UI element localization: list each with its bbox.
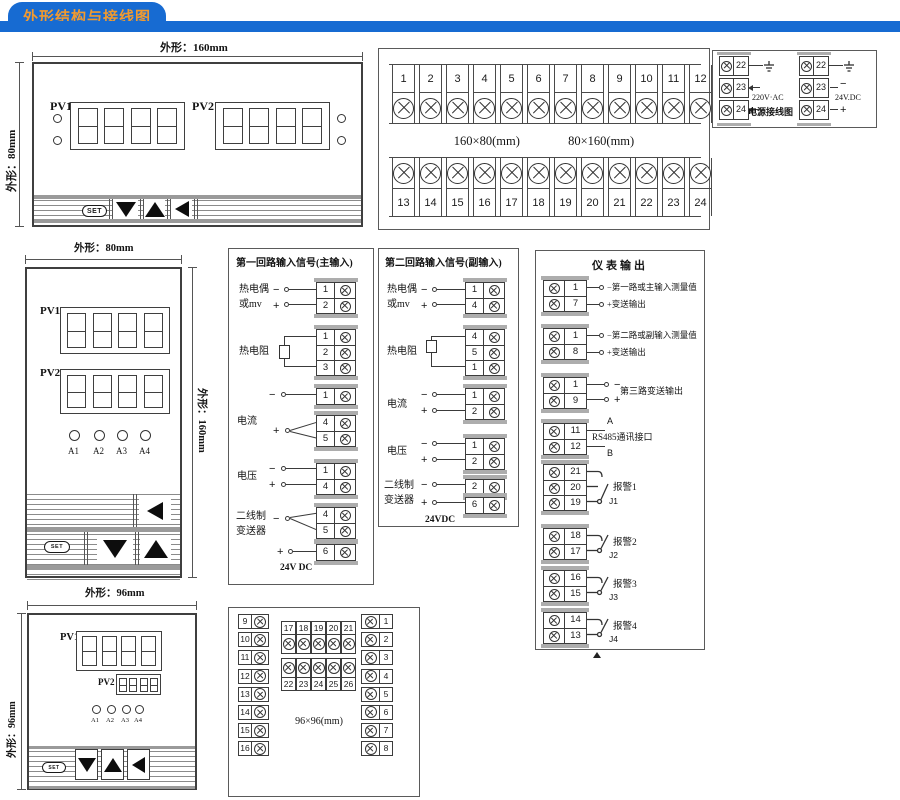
screw-icon [343,662,355,674]
terminal-cell: 7 [554,65,577,123]
terminal-cell: 22 [281,659,296,690]
terminal-number: 17 [501,188,522,216]
screw-icon [721,83,732,94]
terminal-number: 12 [565,440,586,454]
terminal-number: 7 [379,724,392,737]
wire [293,551,316,552]
terminal-number: 22 [636,188,657,216]
alarm-label: A1 [68,446,79,456]
terminal-number: 19 [312,622,325,635]
alarm-label: A2 [106,717,114,724]
wire-end [599,302,604,307]
alarm-label: A2 [93,446,104,456]
screw-icon [254,688,266,700]
voltage-label: 电压 [237,471,257,483]
terminal-cell: 8 [581,65,604,123]
terminal-number: 10 [636,65,657,93]
terminal-row-top: 1 2 3 4 5 6 7 8 [389,64,701,124]
terminal-row: 14 [238,705,269,720]
screw-icon [447,98,468,119]
screw-icon [328,662,340,674]
screw-icon [340,482,351,493]
terminal-number: 13 [239,688,252,701]
alarm-label: 报警3 [613,580,637,591]
terminal-number: 1 [466,283,484,298]
screw-icon [393,98,414,119]
plus-sign: + [840,105,846,115]
wire [830,87,838,88]
pv1-display [76,631,162,671]
terminal-number: 1 [466,439,484,454]
relay-j-label: J1 [609,497,618,507]
plus-sign: + [273,301,279,311]
minus-sign: − [269,464,275,474]
alarm-label: A4 [139,446,150,456]
screw-icon [474,98,495,119]
terminal-cell: 4 [473,65,496,123]
wire-end [604,397,609,402]
terminal-number: 1 [317,464,335,479]
screw-icon [298,638,310,650]
left-button [127,749,150,780]
wire [437,484,465,485]
dim-height-line [19,62,20,227]
screw-icon [549,331,560,342]
screw-icon [663,98,684,119]
screw-icon [549,396,560,407]
terminal-number: 10 [239,633,252,646]
relay-j-label: J3 [609,593,618,603]
terminal-number: 16 [239,742,252,755]
terminal-number: 22 [814,57,828,75]
terminal-row: 15 [544,586,586,601]
terminal-row: 9 [238,614,269,629]
wire-end [599,350,604,355]
terminal-number: 8 [582,65,603,93]
wire [431,366,465,367]
terminal-row: 1 [544,329,586,344]
pv2-label: PV2 [40,367,60,380]
indicator-lamp [53,136,62,145]
screw-icon [340,348,351,359]
wire-end [599,333,604,338]
wiring-diagram-page: 外形结构与接线图 外形：160mm 外形：80mm PV1 PV2 SET [0,0,900,800]
panel-face: PV1 PV2 A1 A2 A3 A4 SET [27,613,197,790]
terminal-number: 4 [317,480,335,494]
terminal-number: 24 [690,188,711,216]
screw-icon [365,743,377,755]
terminal-row: 7 [361,723,393,738]
button-strip: SET [29,746,195,789]
terminal-number: 2 [317,346,335,360]
panel-face: PV1 PV2 SET [32,62,363,227]
alarm-lamp [94,430,105,441]
terminal-row-bottom: 13 14 15 16 17 18 19 20 [389,157,701,217]
wire [286,468,316,469]
terminal-cell: 20 [581,158,604,216]
marker-icon [593,652,601,658]
screw-icon [489,332,500,343]
terminal-number: 24 [734,101,748,119]
minus-sign: − [269,390,275,400]
screw-icon [636,98,657,119]
panel-face: PV1 PV2 A1 A2 A3 A4 SET [25,267,182,578]
terminal-strip-box: 1 2 3 4 5 6 7 8 [378,48,710,230]
wire [587,287,599,288]
terminal-number: 3 [379,651,392,664]
terminal-block: 451 [465,329,505,376]
terminal-number: 13 [565,629,586,643]
terminal-row: 4 [361,669,393,684]
terminal-cell: 17 [500,158,523,216]
terminal-number: 2 [466,405,484,419]
down-arrow-icon [103,540,127,558]
terminal-cell: 26 [341,659,356,690]
screw-icon [254,670,266,682]
terminal-block: 14 [316,463,356,495]
wire [290,422,317,431]
down-arrow-icon [78,758,96,772]
terminal-block: 1413 [543,612,587,644]
terminal-number: 1 [466,389,484,404]
plus-sign: + [277,547,283,557]
down-button [97,536,133,561]
pv2-label: PV2 [98,677,115,687]
terminal-row: 6 [361,705,393,720]
terminal-number: 24 [312,677,325,690]
screw-icon [489,457,500,468]
terminal-number: 4 [474,65,495,93]
relay-j-label: J4 [609,635,618,645]
screw-icon [254,743,266,755]
terminal-row: 11 [544,424,586,439]
terminal-number: 11 [663,65,684,93]
terminal-cell: 21 [608,158,631,216]
plus-sign: + [273,426,279,436]
size-label-80x160: 80×160(mm) [568,134,634,148]
wire [289,304,316,305]
dim-height-label: 外形：96mm [7,701,19,758]
terminal-number: 18 [565,529,586,544]
terminal-number: 1 [317,330,335,345]
wire-end [599,285,604,290]
screw-icon [365,616,377,628]
terminal-row: 16 [544,571,586,586]
terminal-row: 1 [317,283,355,298]
dim-width-label: 外形：96mm [85,588,145,600]
terminal-row: 5 [361,687,393,702]
screw-icon [489,348,500,359]
terminal-number: 2 [379,633,392,646]
screw-icon [549,615,560,626]
output-line: +变送输出 [607,300,646,310]
terminal-row: 23 [799,78,829,98]
screw-icon [254,634,266,646]
terminal-row: 10 [238,632,269,647]
terminal-number: 20 [582,188,603,216]
terminal-row: 1 [317,389,355,404]
up-button [144,200,165,218]
screw-icon [801,105,812,116]
terminal-row: 4 [466,330,504,345]
terminal-number: 4 [317,416,335,431]
screw-icon [549,483,560,494]
down-button [75,749,98,780]
terminal-block: 1 [316,388,356,405]
terminal-row: 1 [361,614,393,629]
screw-icon [582,163,603,184]
minus-sign: − [421,390,427,400]
terminal-number: 6 [317,545,335,560]
terminal-number: 13 [393,188,414,216]
terminal-row: 24 [799,100,829,120]
terminal-row: 6 [466,498,504,513]
plus-sign: + [614,395,620,405]
loop1-title: 第一回路输入信号(主输入) [236,258,353,270]
alarm-label: A1 [91,717,99,724]
terminal-number: 7 [555,65,576,93]
screw-icon [690,163,711,184]
terminal-number: 3 [317,361,335,375]
screw-icon [254,652,266,664]
or-mv-label: 或mv [239,299,262,311]
terminal-number: 1 [565,281,586,296]
up-arrow-icon [104,758,122,772]
or-mv-label: 或mv [387,299,410,311]
terminal-cell: 2 [419,65,442,123]
terminal-number: 23 [734,79,748,97]
terminal-number: 2 [317,299,335,313]
screw-icon [489,441,500,452]
terminal-cell: 20 [326,622,341,653]
terminal-row: 12 [238,669,269,684]
terminal-number: 19 [555,188,576,216]
screw-icon [254,616,266,628]
wire [284,336,316,337]
terminal-row: 15 [238,723,269,738]
terminal-row: 2 [466,404,504,419]
size-label-160x80: 160×80(mm) [454,134,520,148]
terminal-block: 6 [465,497,505,514]
current-label: 电流 [387,399,407,411]
wire [437,502,465,503]
terminal-block: 45 [316,415,356,447]
wire [437,304,465,305]
dim-width-line [27,605,197,606]
terminal-row: 16 [238,741,269,756]
terminal-number: 9 [239,615,252,628]
screw-icon [721,61,732,72]
terminal-block: 45 [316,507,356,539]
terminal-number: 19 [565,496,586,510]
plus-sign: + [269,480,275,490]
screw-icon [549,589,560,600]
dim-height-line [192,267,193,578]
two-wire-label: 二线制 [236,511,266,523]
screw-icon [313,638,325,650]
screw-icon [420,163,441,184]
rtd-label: 热电阻 [239,346,269,358]
terminal-number: 9 [565,394,586,408]
left-button [139,499,171,522]
screw-icon [549,631,560,642]
terminal-number: 11 [239,651,252,664]
alarm-lamp [92,705,101,714]
terminal-row: 5 [317,431,355,446]
terminal-cell: 11 [662,65,685,123]
terminal-row: 2 [466,454,504,469]
minus-sign: − [273,514,279,524]
terminal-block: 12 [465,438,505,470]
up-button [101,749,124,780]
power-dc-group: 22 23 24 − + 24V.DC [799,56,875,124]
terminal-row: 19 [544,495,586,510]
wire [437,459,465,460]
divider [133,494,137,527]
resistor-symbol [279,345,290,359]
terminal-row: 13 [544,628,586,643]
terminal-cell: 15 [446,158,469,216]
terminal-cell: 13 [392,158,415,216]
terminal-number: 18 [528,188,549,216]
terminal-cell: 14 [419,158,442,216]
wire [290,513,316,518]
terminal-number: 5 [379,688,392,701]
terminal-row: 3 [317,360,355,375]
output-line: −第一路或主输入测量值 [607,283,697,293]
terminal-number: 23 [663,188,684,216]
terminal-number: 11 [565,424,586,439]
wire [749,65,763,66]
dim-height-line [21,613,22,790]
pv2-display [60,369,170,414]
wire [286,394,316,395]
terminal-number: 12 [690,65,711,93]
screw-icon [365,652,377,664]
rs485-label: RS485通讯接口 [592,432,653,442]
screw-icon [298,662,310,674]
wire [587,399,604,400]
screw-icon [528,98,549,119]
wire [587,304,599,305]
terminal-cell: 24 [311,659,326,690]
plus-sign: + [421,455,427,465]
terminal-row: 8 [361,741,393,756]
terminal-block: 18 [543,328,587,360]
wire [437,394,465,395]
terminal-number: 2 [420,65,441,93]
terminal-cell: 23 [296,659,311,690]
terminal-block: 212019 [543,464,587,511]
terminal-number: 16 [565,571,586,586]
terminal-row: 20 [544,480,586,495]
terminal-number: 21 [342,622,355,635]
screw-icon [549,547,560,558]
terminal-row: 12 [544,439,586,454]
screw-icon [549,283,560,294]
relay-j-label: J2 [609,551,618,561]
terminal-block: 17 [543,280,587,312]
screw-icon [340,301,351,312]
terminal-number: 5 [317,432,335,446]
screw-icon [283,638,295,650]
terminal-row: 22 [719,56,749,76]
terminal-number: 8 [565,345,586,359]
set-button: SET [42,762,66,773]
screw-icon [549,498,560,509]
screw-icon [340,510,351,521]
terminal-number: 14 [420,188,441,216]
dim-width-label: 外形：80mm [74,243,134,255]
terminal-row: 1 [466,360,504,375]
terminal-row: 23 [719,78,749,98]
screw-icon [254,725,266,737]
terminal-row: 5 [466,345,504,360]
transmitter-label: 变送器 [236,526,266,538]
power-ac-group: 22 23 24 220V·AC 电源接线图 [719,56,793,124]
down-arrow-icon [116,202,136,217]
minus-sign: − [421,480,427,490]
wire-end [604,382,609,387]
terminal-row: 1 [466,283,504,298]
screw-icon [501,98,522,119]
screw-icon [489,301,500,312]
terminal-number: 9 [609,65,630,93]
left-button [171,200,192,218]
up-arrow-icon [145,202,165,217]
pv1-display [70,102,185,150]
wire [431,336,465,337]
wire [437,289,465,290]
relay-contact-icon [587,464,613,517]
screw-icon [489,482,500,493]
terminal-cell: 5 [500,65,523,123]
up-button [140,536,171,561]
screw-icon [340,434,351,445]
alarm-label: A3 [116,446,127,456]
psu-label: 24V DC [280,563,312,574]
terminal-number: 1 [565,378,586,393]
wire [587,446,605,447]
screw-icon [609,163,630,184]
terminal-row: 4 [317,479,355,494]
alarm-lamp [69,430,80,441]
indicator-lamp [337,114,346,123]
terminal-number: 17 [565,545,586,559]
terminal-number: 3 [447,65,468,93]
wire [587,335,599,336]
terminal-number: 6 [379,706,392,719]
screw-icon [801,61,812,72]
terminal-number: 23 [297,677,310,690]
screw-icon [340,363,351,374]
terminal-row: 1 [317,464,355,479]
terminal-cell: 9 [608,65,631,123]
terminal-number: 20 [565,481,586,495]
button-strip: SET [34,195,361,223]
screw-icon [528,163,549,184]
transmitter-label: 变送器 [384,495,414,507]
terminal-number: 1 [393,65,414,93]
screw-icon [549,467,560,478]
rs485-b-label: B [607,448,613,458]
screw-icon [365,670,377,682]
pv2-label: PV2 [192,100,214,114]
terminal-number: 4 [466,299,484,313]
screw-icon [801,83,812,94]
current-label: 电流 [237,416,257,428]
power-terminal-block: 22 23 24 [719,56,749,122]
